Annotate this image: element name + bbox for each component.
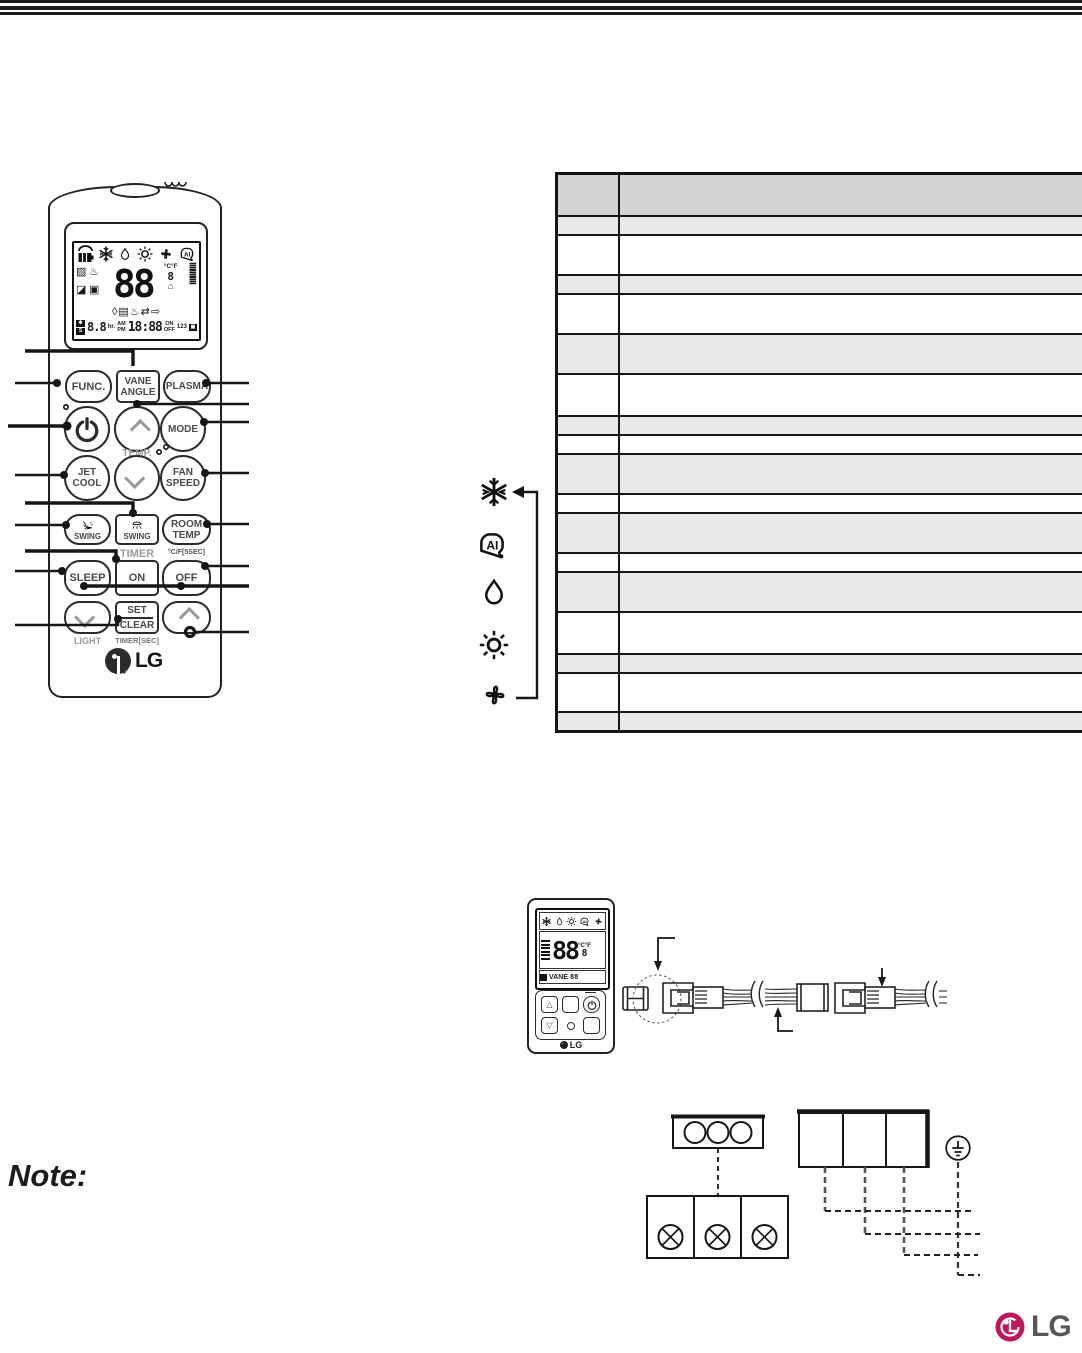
wired-lcd-small-digit: 8 [581,950,587,957]
ai-icon [579,916,590,927]
lcd-s-flag: S [76,328,85,335]
lcd-123: 123 [177,324,187,330]
table-cell [557,435,619,454]
table-cell [557,294,619,334]
wired-remote: 88 °C°F 8 VANE 88 △ ▽ [527,898,615,1054]
table-row [557,654,1082,673]
table-cell [619,712,1082,732]
table-cell [557,416,619,435]
table-row [557,294,1082,334]
table-row [557,275,1082,294]
wired-lcd-vane-digits: 88 [570,973,578,981]
lg-wordmark: LG [570,1040,583,1050]
lcd-clock-digits: 18:88 [128,320,162,335]
wired-lcd-digits: 88 [552,936,578,965]
wired-led-indicator [567,1022,575,1030]
wired-lcd-vane-row: VANE 88 [539,970,606,984]
mode-icons-diagram [470,465,590,715]
wired-remote-lg-logo: LG [529,1040,613,1050]
mode-bracket-line [516,492,537,698]
lcd-fanspeed-bars: ≣ ≣ ≣ [189,264,197,285]
table-cell [619,275,1082,294]
table-row [557,334,1082,374]
lcd-calendar-icon: ▣ [189,324,197,331]
top-rule-1 [0,0,1082,3]
top-rule-2 [0,6,1082,10]
table-row [557,416,1082,435]
table-row [557,612,1082,654]
table-cell [619,494,1082,513]
table-row [557,216,1082,235]
triangle-up-icon: △ [546,1000,552,1009]
table-cell [557,334,619,374]
table-cell [619,334,1082,374]
footer-lg-logo: LG [994,1310,1071,1344]
table-cell [619,454,1082,494]
table-cell [619,416,1082,435]
table-row [557,673,1082,712]
remote-top-squiggle [162,179,192,191]
wired-remote-button-panel: △ ▽ [535,990,606,1040]
lcd-small-digit: 8 [167,271,174,282]
remote-lcd: ▨ ♨ ◪ ▣ 88 °C°F 8 ⌂ ≣ ≣ ≣ [64,222,208,350]
remote-callout-lines [0,340,260,650]
cable-assembly-diagram [615,925,955,1040]
lcd-function-icons: ▨ ♨ ◪ ▣ [76,264,102,300]
wired-blank-button-1[interactable] [562,996,579,1013]
wired-power-button[interactable] [583,996,600,1013]
snowflake-icon [541,916,552,927]
table-row [557,435,1082,454]
sun-icon [136,245,154,263]
manual-page: AI [0,0,1082,1353]
table-cell [619,216,1082,235]
table-cell [557,174,619,216]
wired-blank-button-2[interactable] [583,1017,600,1034]
table-row [557,174,1082,216]
table-cell [619,673,1082,712]
table-row [557,454,1082,494]
spec-table [555,172,1082,733]
lcd-hour-digits: 8.8 [87,320,106,334]
table-cell [557,275,619,294]
table-cell [619,294,1082,334]
table-cell [557,374,619,416]
table-row [557,572,1082,612]
lcd-house-icon: ⌂ [168,282,173,291]
wired-up-button[interactable]: △ [541,996,558,1013]
wiring-diagram [640,1100,1040,1285]
table-row [557,494,1082,513]
triangle-down-icon: ▽ [546,1021,552,1030]
lcd-timer-row: ✱ S 8.8 hr. AM PM 18:88 ON OFF 123 [76,319,197,335]
drop-icon [555,916,564,927]
arrow-left-icon [512,486,524,498]
wired-lcd-bars [541,940,550,960]
lg-wordmark: LG [1031,1310,1071,1344]
table-cell [619,374,1082,416]
table-row [557,513,1082,553]
lg-symbol-icon [994,1311,1026,1343]
remote-lg-logo: LG [105,648,162,674]
wired-lcd-mode-icons [539,912,606,930]
table-row [557,235,1082,275]
table-cell [619,553,1082,572]
ground-icon [946,1136,970,1160]
table-cell [619,654,1082,673]
note-label: Note: [8,1158,87,1194]
lcd-temperature-digits: 88 [113,264,153,304]
sun-icon [480,631,508,659]
table-cell [619,435,1082,454]
sun-icon [566,916,577,927]
lg-wordmark: LG [135,649,162,673]
table-cell [619,612,1082,654]
table-cell [619,174,1082,216]
wired-lcd-vane-label: VANE [549,974,568,981]
fan-icon [593,916,604,927]
remote-lcd-panel: ▨ ♨ ◪ ▣ 88 °C°F 8 ⌂ ≣ ≣ ≣ [72,241,201,341]
wired-lcd-temp-row: 88 °C°F 8 [539,931,606,969]
ai-icon [178,245,196,263]
table-row [557,712,1082,732]
table-cell [619,235,1082,275]
top-rule-3 [0,12,1082,15]
fan-icon [157,245,175,263]
table-cell [619,572,1082,612]
wired-lcd-flag-icon [540,974,547,981]
lcd-off: OFF [164,327,175,333]
snowflake-icon [482,478,506,506]
wired-down-button[interactable]: ▽ [541,1017,558,1034]
table-row [557,553,1082,572]
power-icon [587,1000,597,1010]
drop-icon [118,246,132,262]
table-cell [557,216,619,235]
fan-icon [487,687,503,703]
power-mark-line [585,992,596,993]
table-cell [557,235,619,275]
lcd-hr-unit: hr. [108,324,115,330]
table-row [557,374,1082,416]
lcd-star-flag: ✱ [76,320,85,327]
wired-remote-lcd: 88 °C°F 8 VANE 88 [535,908,610,990]
drop-icon [486,581,502,604]
signal-battery-icon [77,245,94,264]
lg-symbol-icon [560,1041,568,1049]
snowflake-icon [97,245,115,263]
table-cell [619,513,1082,553]
lcd-pm: PM [117,327,125,333]
remote-ir-emitter [110,183,160,198]
lg-symbol-icon [105,648,131,674]
ai-icon [481,534,503,558]
lcd-status-icons: ◊▤♨⇄⇨ [76,304,197,319]
